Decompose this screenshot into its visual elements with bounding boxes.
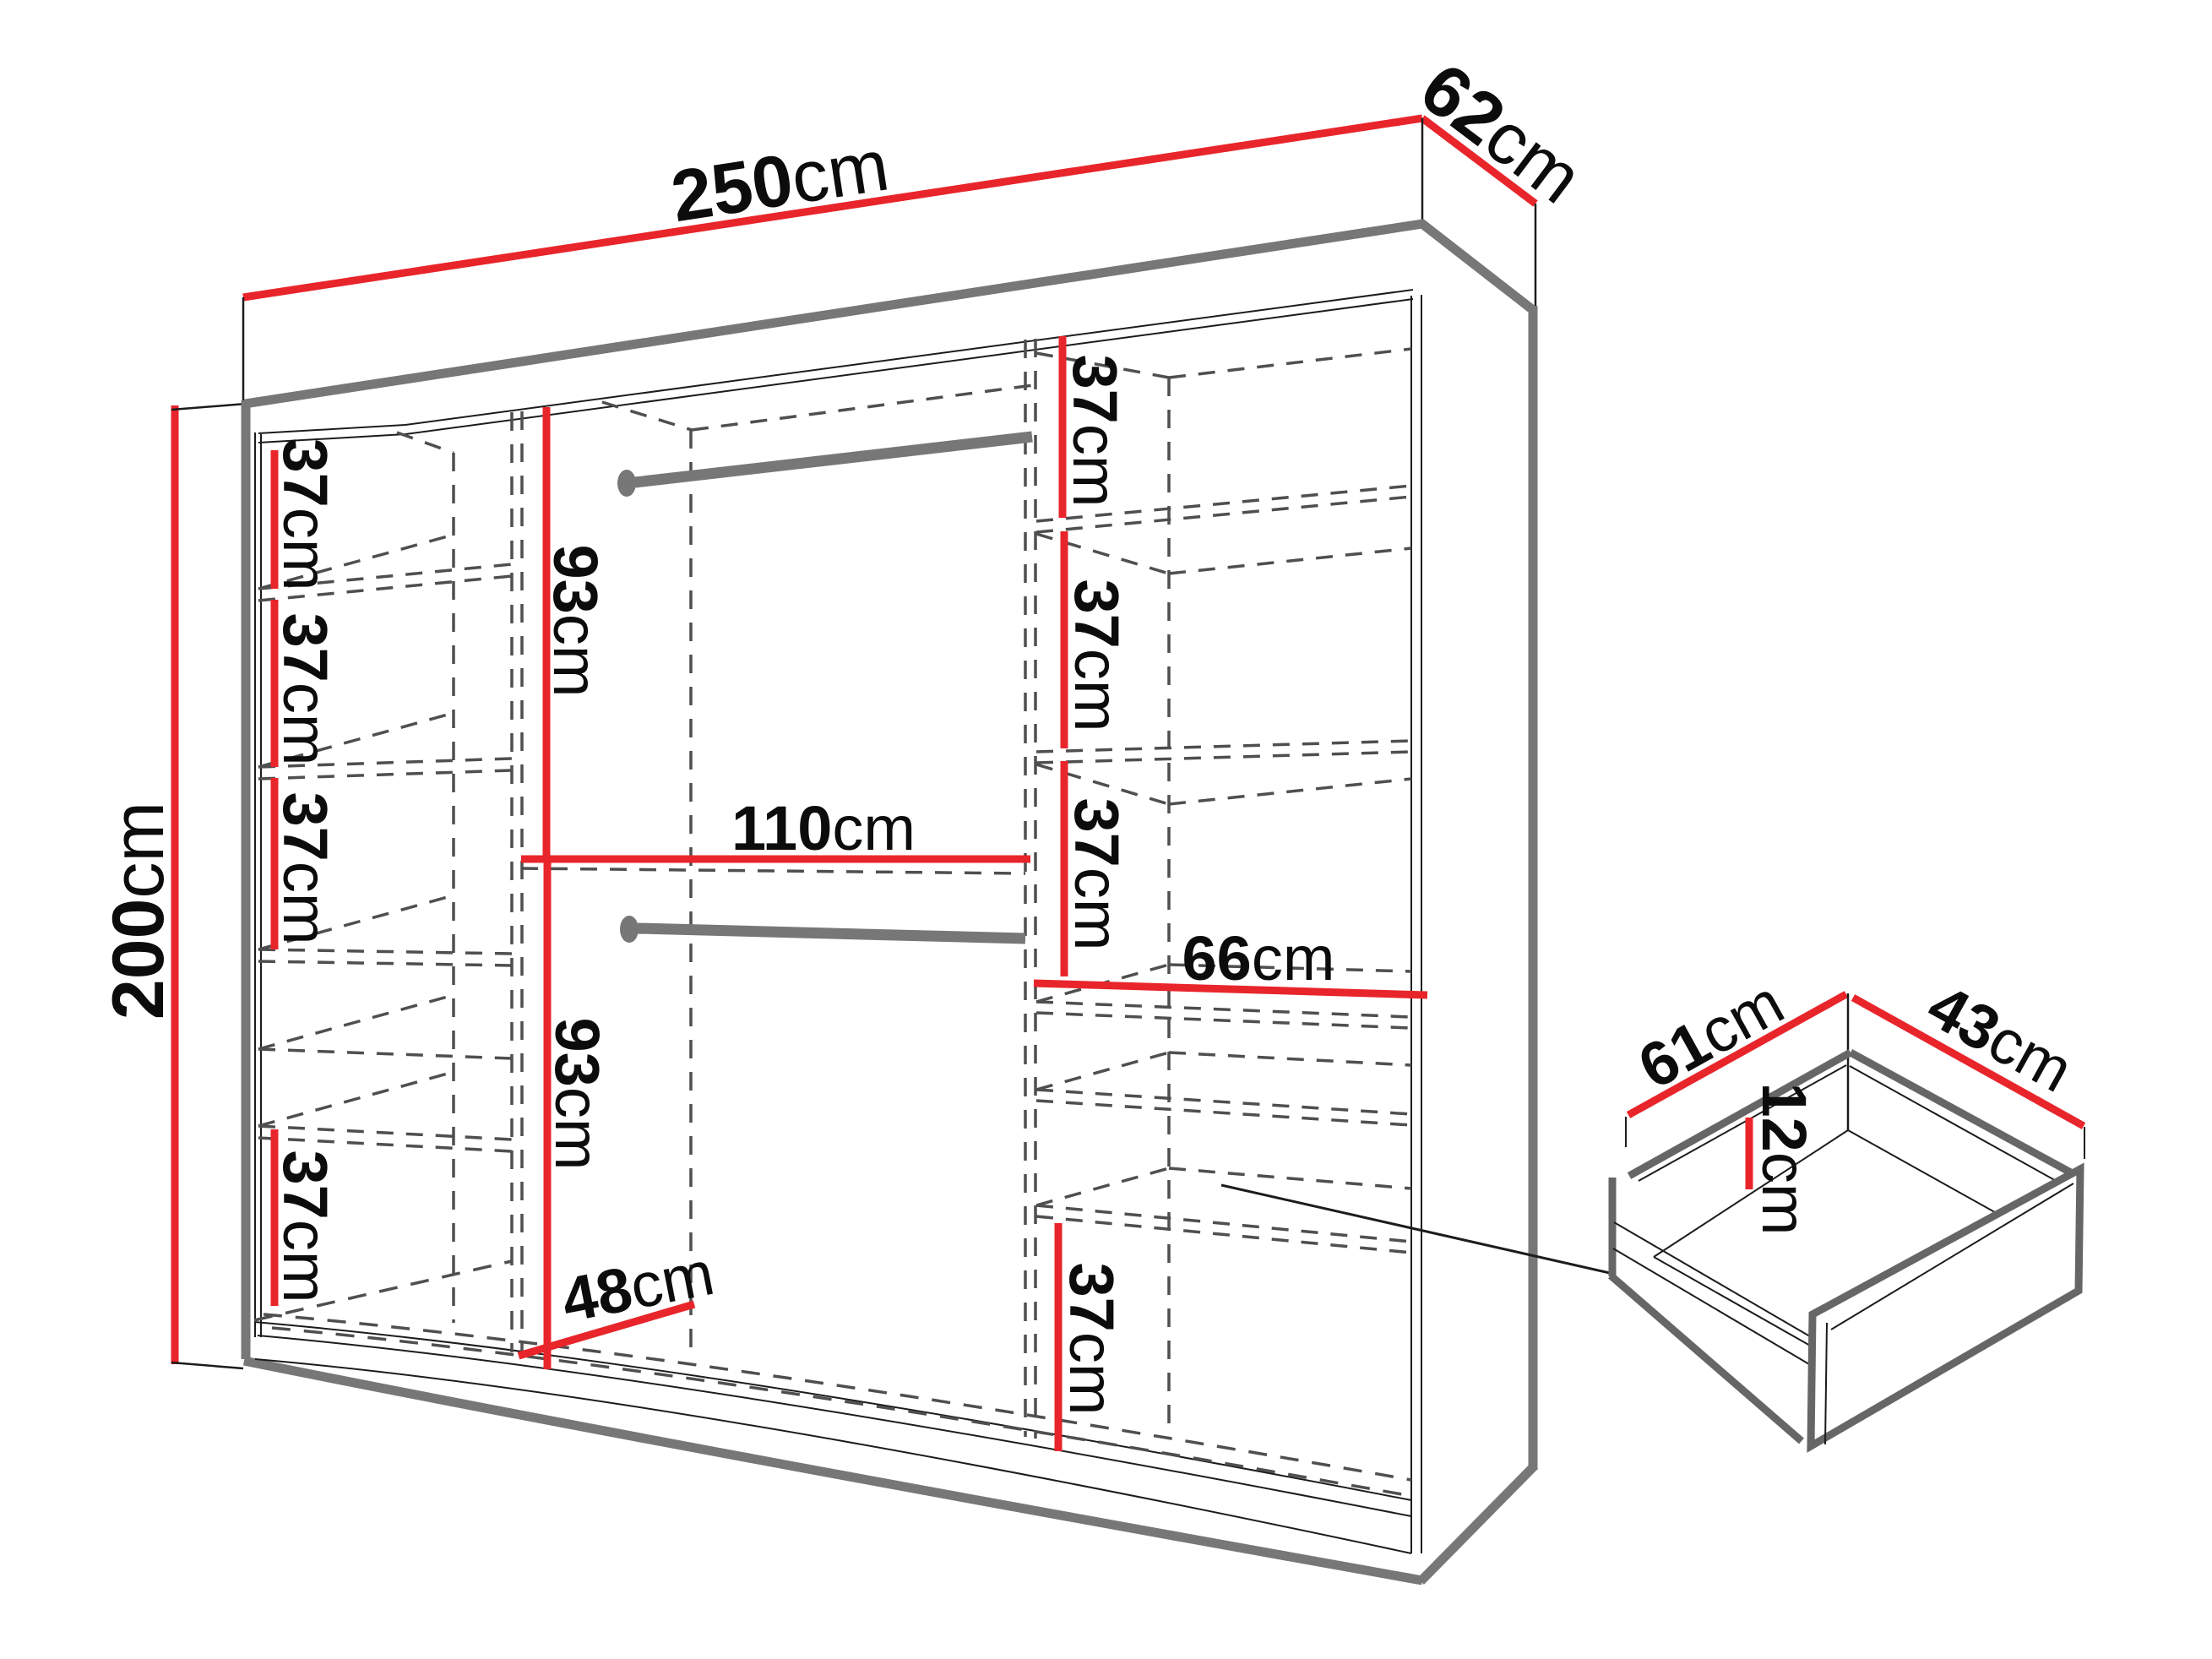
svg-text:200cm: 200cm <box>98 802 179 1020</box>
svg-text:37cm: 37cm <box>1060 355 1130 508</box>
svg-text:37cm: 37cm <box>1062 798 1132 951</box>
svg-text:37cm: 37cm <box>1062 579 1132 732</box>
svg-text:93cm: 93cm <box>542 1018 612 1171</box>
svg-text:37cm: 37cm <box>270 438 340 591</box>
svg-text:37cm: 37cm <box>270 1150 340 1303</box>
svg-text:110cm: 110cm <box>731 793 916 863</box>
svg-text:12cm: 12cm <box>1749 1083 1819 1236</box>
svg-text:37cm: 37cm <box>270 792 340 945</box>
svg-text:37cm: 37cm <box>270 613 340 766</box>
svg-text:66cm: 66cm <box>1182 923 1335 993</box>
svg-text:93cm: 93cm <box>541 545 611 698</box>
svg-text:37cm: 37cm <box>1057 1263 1127 1416</box>
